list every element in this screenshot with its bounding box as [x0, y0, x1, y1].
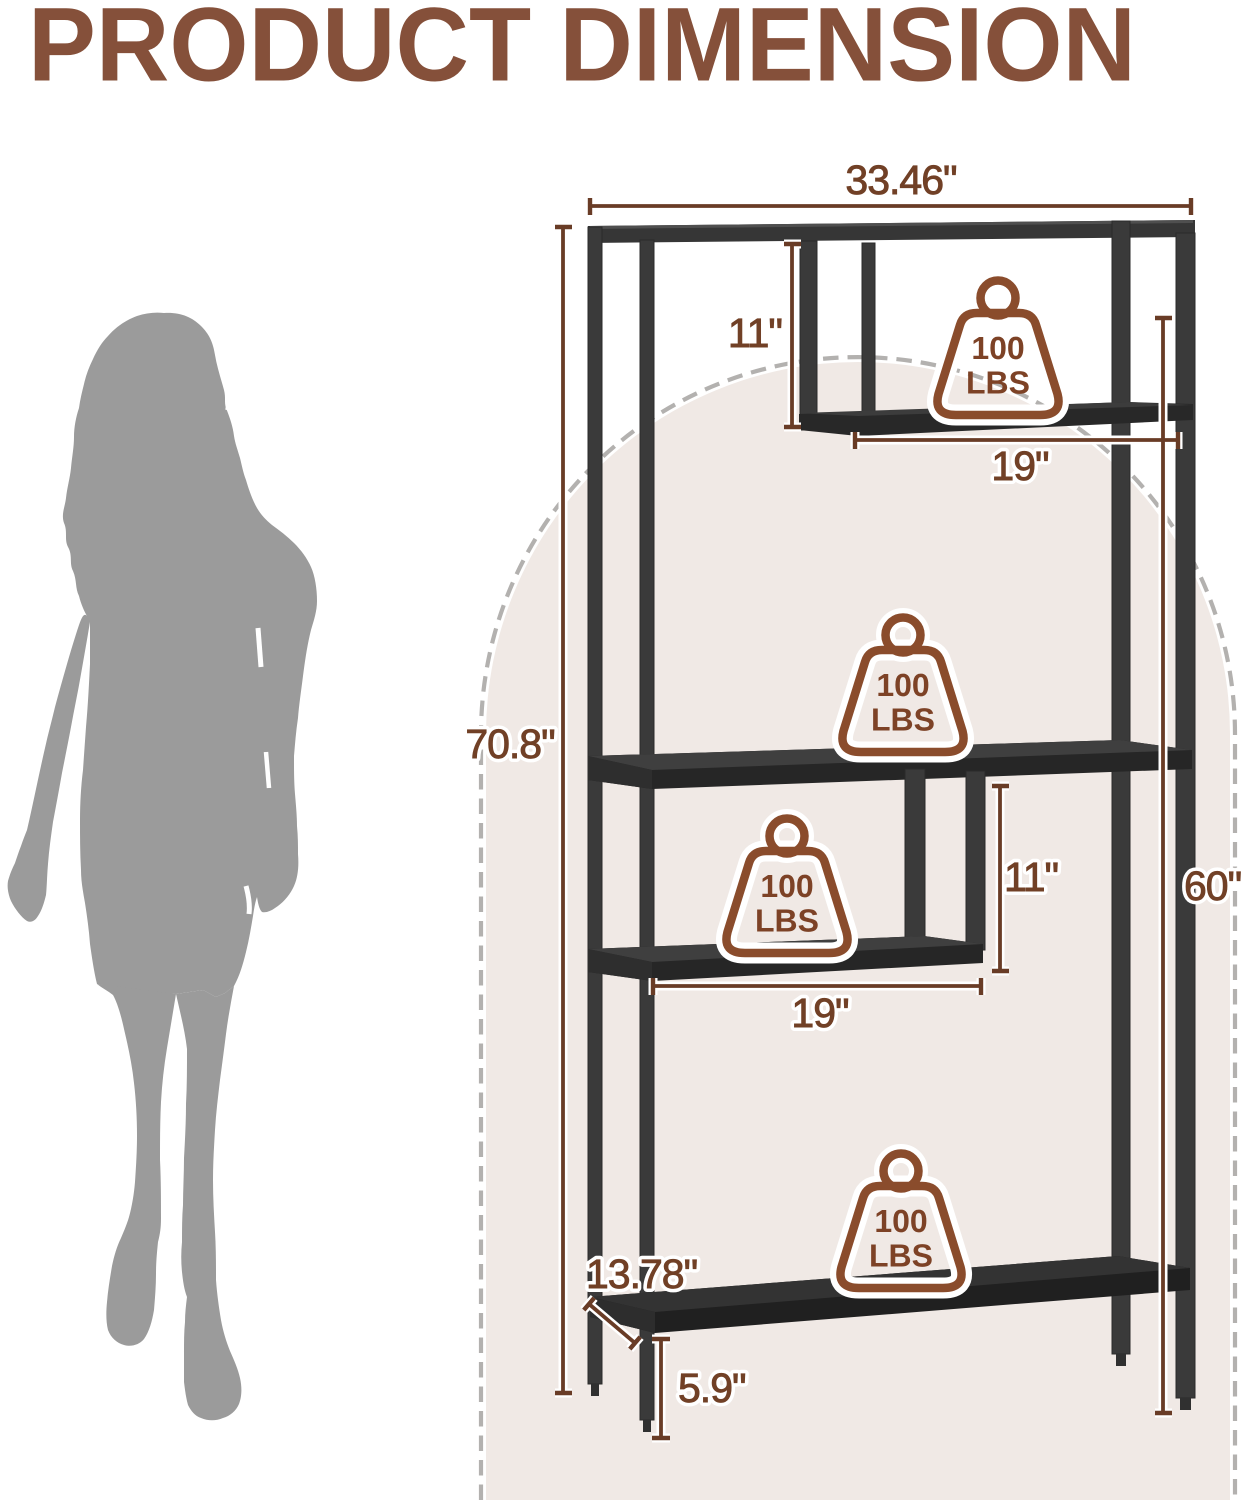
svg-text:60": 60" [1184, 863, 1241, 909]
svg-text:19": 19" [991, 443, 1048, 489]
svg-text:5.9": 5.9" [678, 1365, 746, 1411]
svg-text:33.46": 33.46" [845, 157, 956, 203]
svg-text:70.8": 70.8" [465, 721, 554, 767]
svg-text:11": 11" [728, 310, 782, 356]
svg-text:19": 19" [791, 990, 848, 1036]
svg-text:13.78": 13.78" [586, 1251, 697, 1297]
svg-text:PRODUCT DIMENSION: PRODUCT DIMENSION [28, 0, 1136, 104]
svg-text:11": 11" [1004, 854, 1058, 900]
